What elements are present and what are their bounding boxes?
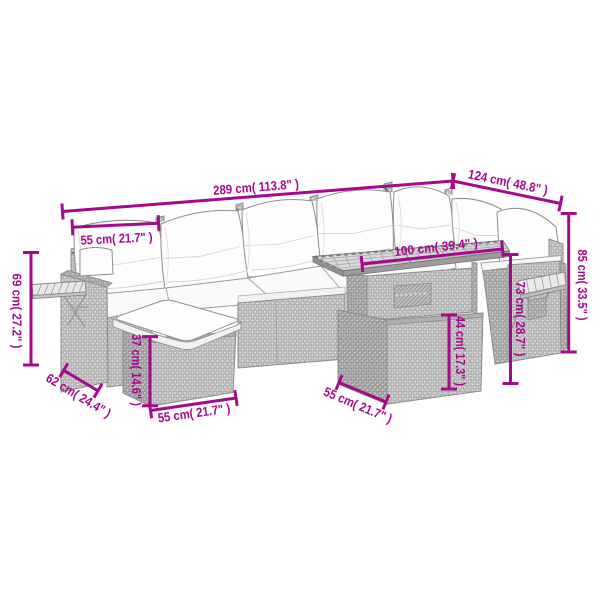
svg-text:44 cm( 17.3" ): 44 cm( 17.3" ) — [453, 316, 468, 386]
svg-text:69 cm( 27.2" ): 69 cm( 27.2" ) — [10, 274, 25, 349]
svg-text:85 cm( 33.5" ): 85 cm( 33.5" ) — [575, 250, 590, 321]
svg-text:73 cm( 28.7" ): 73 cm( 28.7" ) — [513, 282, 528, 357]
svg-text:37 cm( 14.6" ): 37 cm( 14.6" ) — [129, 334, 144, 406]
